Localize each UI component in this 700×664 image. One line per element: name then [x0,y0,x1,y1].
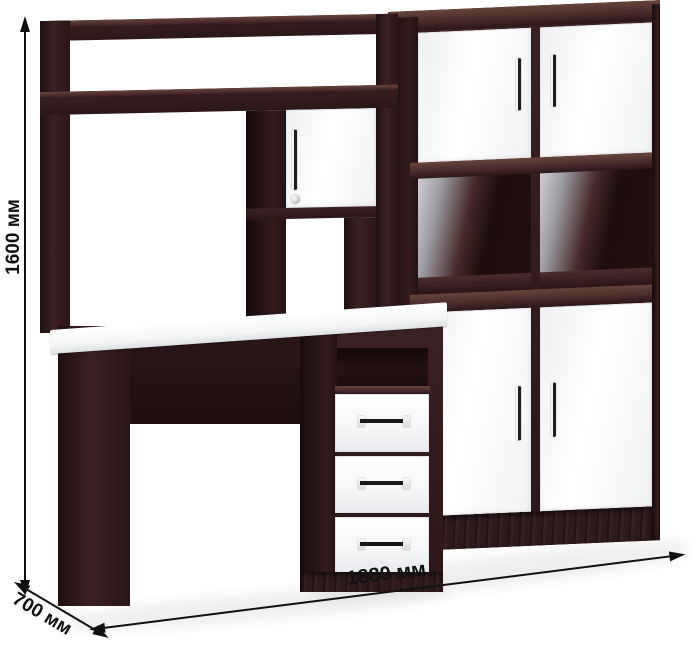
desk-open-niche [337,348,428,386]
arrow-right-icon [669,549,686,561]
arrow-up-icon [20,16,30,32]
hutch-door-handle [292,130,297,190]
hutch-left-stile [40,21,70,334]
furniture-dimension-diagram: 1600 мм 1880 мм 700 мм [0,0,700,664]
desk-left-leg [58,326,130,606]
hutch-top-bar [40,14,398,41]
drawer-3-handle [358,539,410,550]
height-dimension-arrow [24,30,26,582]
hutch-top-surface [40,14,398,29]
hutch-right-stile [376,14,398,326]
desk-niche-shelf [335,386,430,394]
hutch-shelf-surface [40,85,398,99]
desk-pedestal-left-side [300,326,337,592]
hutch-door [286,108,376,208]
height-dimension-label: 1600 мм [3,185,25,289]
drawer-2-handle [358,478,410,489]
drawer-1-handle [358,416,410,427]
